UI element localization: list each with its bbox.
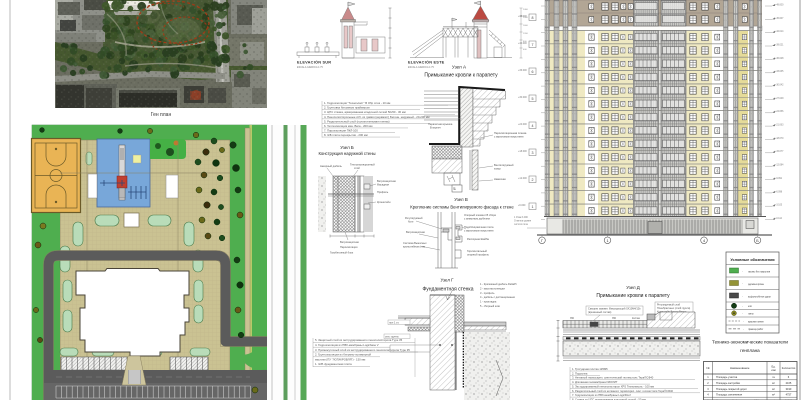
svg-text:+30.042: +30.042: [775, 85, 784, 87]
svg-text:+27.049: +27.049: [775, 98, 784, 100]
svg-text:Примыкание кровли к парапету: Примыкание кровли к парапету: [424, 73, 498, 79]
svg-text:красная линия: красная линия: [748, 321, 764, 323]
svg-text:3190: 3190: [786, 387, 792, 391]
svg-text:м²: м²: [772, 394, 775, 397]
svg-text:пол 1 эт.: пол 1 эт.: [389, 321, 399, 325]
svg-text:2. Грунтовка битумным праймеро: 2. Грунтовка битумным праймером: [324, 106, 370, 110]
svg-text:350: 350: [612, 317, 617, 320]
svg-text:Узел А: Узел А: [452, 65, 467, 70]
svg-text:+30.000: +30.000: [518, 96, 527, 99]
svg-text:асфальтобетон дорог: асфальтобетон дорог: [748, 295, 771, 298]
svg-text:3. Нетканый термоскреп. синтет: 3. Нетканый термоскреп. синтетический ге…: [572, 376, 654, 380]
svg-text:3 - профиль: 3 - профиль: [480, 291, 495, 295]
svg-text:ESCALA GRAFICA 1:75: ESCALA GRAFICA 1:75: [408, 66, 434, 69]
svg-text:Площадь застройки: Площадь застройки: [716, 381, 741, 385]
svg-text:+3.105: +3.105: [775, 205, 783, 207]
svg-text:Технико-экономические показате: Технико-экономические показатели: [712, 340, 788, 345]
svg-text:+24.056: +24.056: [775, 111, 784, 113]
svg-text:Ветрозащитная: Ветрозащитная: [406, 230, 425, 234]
svg-text:+6.098: +6.098: [775, 191, 783, 193]
svg-text:Газобетонный блок: Газобетонный блок: [330, 251, 354, 255]
svg-text:4: 4: [703, 239, 705, 243]
svg-text:болт: болт: [408, 220, 414, 224]
svg-text:1200: 1200: [523, 33, 529, 35]
svg-text:Конструкция наружной стены: Конструкция наружной стены: [318, 151, 375, 156]
svg-text:5. Разделительный слой (полиэт: 5. Разделительный слой (полиэтиленовая п…: [324, 119, 390, 123]
svg-text:м²: м²: [772, 388, 775, 391]
svg-text:чистого пола: чистого пола: [514, 224, 528, 226]
svg-text:+12.000: +12.000: [518, 177, 527, 180]
svg-text:4. Гидроизоляция из ПВХ-мембра: 4. Гидроизоляция из ПВХ-мембраны Logicba…: [315, 343, 379, 347]
svg-text:Профиль: Профиль: [377, 190, 389, 194]
svg-text:Кронштейн: Кронштейн: [377, 200, 391, 204]
svg-text:Пароизоляционная пленка: Пароизоляционная пленка: [494, 131, 527, 135]
svg-text:Навесная: Навесная: [494, 177, 506, 181]
svg-text:5 - сборный шов: 5 - сборный шов: [480, 304, 500, 308]
svg-text:Парапетная крышка: Парапетная крышка: [428, 122, 453, 126]
svg-text:7: 7: [532, 43, 534, 47]
svg-text:Площадь озеленения: Площадь озеленения: [716, 393, 743, 397]
svg-text:Количество: Количество: [782, 367, 796, 370]
svg-text:Пароизоляция: Пароизоляция: [340, 245, 358, 249]
svg-text:+24.000: +24.000: [518, 123, 527, 126]
svg-text:Фасадная: Фасадная: [377, 183, 390, 187]
svg-text:(временный состав): (временный состав): [588, 311, 611, 314]
svg-text:мастики (ПУ "ЛОГИКРОВЛЯ") - 15: мастики (ПУ "ЛОГИКРОВЛЯ") - 150 мм: [315, 357, 365, 361]
svg-text:Примыкание кровли к парапету: Примыкание кровли к парапету: [596, 293, 670, 299]
svg-text:+42.000: +42.000: [518, 42, 527, 45]
svg-text:Узел В: Узел В: [454, 197, 468, 202]
svg-text:2400: 2400: [523, 9, 529, 11]
svg-text:+15.077: +15.077: [775, 151, 784, 153]
svg-text:350: 350: [570, 317, 575, 320]
svg-text:генплана: генплана: [740, 348, 760, 353]
svg-text:липы: липы: [748, 313, 754, 315]
svg-text:Колпак: Колпак: [632, 317, 641, 320]
svg-text:ELEVACIÓN ESTE: ELEVACIÓN ESTE: [408, 60, 445, 65]
svg-text:3: 3: [532, 151, 534, 155]
svg-text:опорный профиль: опорный профиль: [467, 253, 490, 257]
svg-text:Опорный элемент В сборе: Опорный элемент В сборе: [464, 213, 497, 217]
svg-text:Ветрозащитная: Ветрозащитная: [377, 179, 396, 183]
svg-text:Площадь покрытий дорог: Площадь покрытий дорог: [716, 387, 747, 391]
svg-text:Г: Г: [541, 239, 543, 243]
svg-text:2: 2: [532, 178, 534, 182]
svg-text:4757: 4757: [786, 393, 792, 397]
svg-text:Фундаментная стенка: Фундаментная стенка: [422, 287, 473, 293]
svg-text:+21.063: +21.063: [775, 125, 784, 127]
svg-text:+18.070: +18.070: [775, 138, 784, 140]
svg-text:Отметка уровня: Отметка уровня: [514, 221, 532, 223]
svg-text:ELEVACIÓN SUR: ELEVACIÓN SUR: [297, 60, 331, 65]
svg-text:с анкерным дюбелем: с анкерным дюбелем: [464, 217, 490, 221]
svg-text:6. Теплоизоляция мин. Вата - 2: 6. Теплоизоляция мин. Вата - 200 мм: [324, 124, 372, 128]
svg-text:Ген план: Ген план: [151, 112, 172, 118]
svg-text:4: 4: [532, 124, 534, 128]
svg-text:1600: 1600: [523, 25, 529, 27]
svg-text:Узел Д: Узел Д: [626, 285, 640, 290]
svg-text:+39.021: +39.021: [775, 44, 784, 46]
svg-text:1. Ж/Б фундаментная плита: 1. Ж/Б фундаментная плита: [315, 362, 352, 366]
svg-text:Крепление системы Вентилируемо: Крепление системы Вентилируемого фасада …: [410, 205, 514, 210]
svg-text:1 - Крепежный дюбель DeltaPt: 1 - Крепежный дюбель DeltaPt: [480, 282, 517, 286]
svg-text:Регулируемый: Регулируемый: [405, 216, 423, 220]
svg-text:граница работ: граница работ: [748, 329, 764, 331]
svg-text:с акриловым покрытием: с акриловым покрытием: [494, 136, 524, 139]
svg-text:2. Грунтоизоляция из битумно-п: 2. Грунтоизоляция из битумно-полимерной: [315, 353, 371, 357]
svg-text:Узел Г: Узел Г: [441, 278, 455, 283]
svg-text:1. Гидроизоляция "Техноэласт": 1. Гидроизоляция "Техноэласт" В Обр слоя…: [324, 101, 390, 105]
svg-text:Теплоизоляционный: Теплоизоляционный: [350, 163, 375, 167]
svg-text:+36.028: +36.028: [775, 58, 784, 60]
svg-text:деревья кроны: деревья кроны: [748, 284, 764, 286]
svg-text:Распорная Шайба: Распорная Шайба: [467, 237, 489, 241]
svg-text:6: 6: [532, 70, 534, 74]
svg-text:зазор: зазор: [494, 168, 501, 171]
svg-text:Горизонтальный: Горизонтальный: [467, 249, 487, 253]
svg-text:Наименование: Наименование: [730, 366, 750, 370]
svg-text:2 - мастика клеящая: 2 - мастика клеящая: [480, 286, 505, 290]
svg-text:Узел Б: Узел Б: [340, 145, 354, 150]
svg-text:+18.000: +18.000: [518, 150, 527, 153]
svg-text:1: 1: [532, 205, 534, 209]
svg-text:+48.000: +48.000: [518, 15, 527, 18]
svg-text:+33.035: +33.035: [775, 71, 784, 73]
svg-text:1: 1: [606, 239, 608, 243]
svg-text:5. Экструдированный пенополист: 5. Экструдированный пенополистирол XPS Т…: [572, 384, 654, 388]
svg-text:5. Защитный слой из экструдиро: 5. Защитный слой из экструдированного пе…: [315, 338, 403, 342]
svg-text:изм: изм: [771, 369, 776, 372]
svg-text:3. ЦПС стяжка, армированная кл: 3. ЦПС стяжка, армированная кладочной се…: [324, 110, 406, 114]
svg-text:4. Дrenaжная геомембрана ИЗОЛИ: 4. Дrenaжная геомембрана ИЗОЛИТ: [572, 380, 618, 384]
svg-text:В кирпич: В кирпич: [430, 126, 441, 130]
svg-text:+6.000: +6.000: [518, 204, 526, 207]
svg-text:1 Этаж 3.000: 1 Этаж 3.000: [514, 217, 529, 219]
svg-text:Система Выносных: Система Выносных: [403, 241, 427, 245]
svg-text:Анкерный дюбель: Анкерный дюбель: [320, 164, 342, 168]
svg-text:2165: 2165: [786, 381, 792, 385]
svg-text:+42.014: +42.014: [775, 31, 784, 33]
svg-text:+48.000: +48.000: [775, 4, 784, 6]
svg-text:+36.000: +36.000: [518, 69, 527, 72]
svg-text:+0.112: +0.112: [775, 218, 783, 220]
svg-text:3. Промежуточный слой из экстр: 3. Промежуточный слой из экструдированно…: [315, 348, 410, 352]
svg-text:7. Пароизоляция ПКЛ-100: 7. Пароизоляция ПКЛ-100: [324, 128, 358, 132]
svg-text:Площадь участка: Площадь участка: [716, 375, 738, 379]
svg-text:8. ЖБ плита перекрытия - 200 м: 8. ЖБ плита перекрытия - 200 мм: [324, 133, 368, 137]
svg-text:Условные обозначения: Условные обозначения: [730, 258, 774, 262]
svg-text:Подоблицовочная плита: Подоблицовочная плита: [464, 225, 494, 229]
svg-text:+12.084: +12.084: [775, 165, 784, 167]
svg-text:слой: слой: [354, 166, 360, 170]
svg-text:8: 8: [532, 16, 534, 20]
svg-text:газоны без покрытия: газоны без покрытия: [748, 271, 771, 273]
svg-text:Вентилируемый: Вентилируемый: [494, 163, 514, 167]
svg-text:ESCALA GRAFICA 1:75: ESCALA GRAFICA 1:75: [297, 66, 323, 69]
svg-text:с акриловым покрытием: с акриловым покрытием: [464, 230, 494, 233]
svg-text:6. Разделительный слой из нетк: 6. Разделительный слой из нетканого терм…: [572, 389, 674, 393]
svg-text:2. Подсыпка: 2. Подсыпка: [572, 371, 588, 375]
svg-text:Ветрозащитная: Ветрозащитная: [340, 240, 359, 244]
svg-text:1 - прокладка: 1 - прокладка: [480, 300, 497, 304]
svg-text:Ед.: Ед.: [772, 365, 776, 369]
svg-text:5: 5: [532, 97, 534, 101]
svg-text:4. Пенополистирольные спб. из: 4. Пенополистирольные спб. из гравия (ке…: [324, 115, 430, 119]
svg-text:1. Тротуарная плитка 1К5М5: 1. Тротуарная плитка 1К5М5: [572, 367, 608, 371]
svg-text:+9.091: +9.091: [775, 178, 783, 180]
svg-text:м²: м²: [772, 382, 775, 385]
svg-text:7. Гидроизоляция из ПВХ-мембра: 7. Гидроизоляция из ПВХ-мембраны LogicRo…: [572, 393, 631, 397]
svg-text:+45.007: +45.007: [775, 18, 784, 20]
svg-text:4 - дюбель с дистанционным: 4 - дюбель с дистанционным: [480, 295, 515, 299]
